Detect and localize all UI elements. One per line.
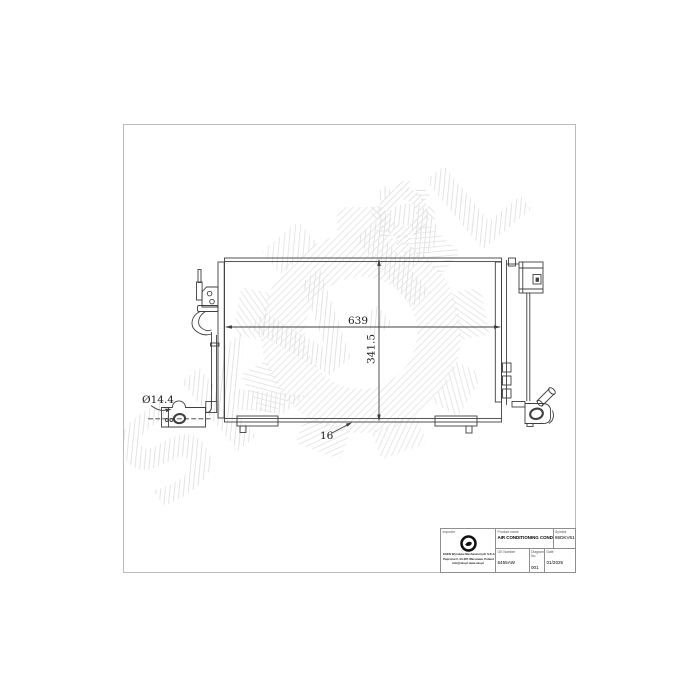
symbol-value: 86DKV61B	[554, 534, 576, 541]
date-label: Date	[545, 549, 575, 554]
drawing-no-cell: Diagram No. 001	[530, 549, 546, 572]
importer-cell: Importer ESEN Wyrobów Mechanicznych S.K.…	[441, 529, 496, 572]
drawing-sheet: { "page": { "background": "#ffffff", "fr…	[0, 0, 700, 700]
company-address-line3: info@skv.pl www.skv.pl	[443, 562, 493, 565]
watermark-text: SKV.PL	[124, 125, 554, 537]
oe-number-cell: OE Number 6455AW	[496, 549, 530, 572]
company-address-line1: ESEN Wyrobów Mechanicznych S.K.A.	[443, 553, 493, 556]
oe-number-label: OE Number	[496, 549, 529, 554]
drawing-no-label: Diagram No.	[530, 549, 545, 559]
product-name-value: AIR CONDITIONING CONDENSER	[496, 534, 553, 541]
importer-label: Importer	[441, 529, 495, 534]
symbol-cell: Symbol 86DKV61B	[554, 529, 576, 549]
company-logo	[460, 535, 477, 552]
drawing-no-value: 001	[530, 564, 545, 571]
date-value: 01/2025	[545, 559, 575, 566]
sheet-frame: SKV.PL	[123, 124, 576, 573]
brand-watermark: SKV.PL	[124, 125, 575, 572]
product-name-cell: Product name AIR CONDITIONING CONDENSER	[496, 529, 554, 549]
title-block: Importer ESEN Wyrobów Mechanicznych S.K.…	[440, 528, 576, 573]
oe-number-value: 6455AW	[496, 559, 529, 566]
date-cell: Date 01/2025	[545, 549, 575, 572]
